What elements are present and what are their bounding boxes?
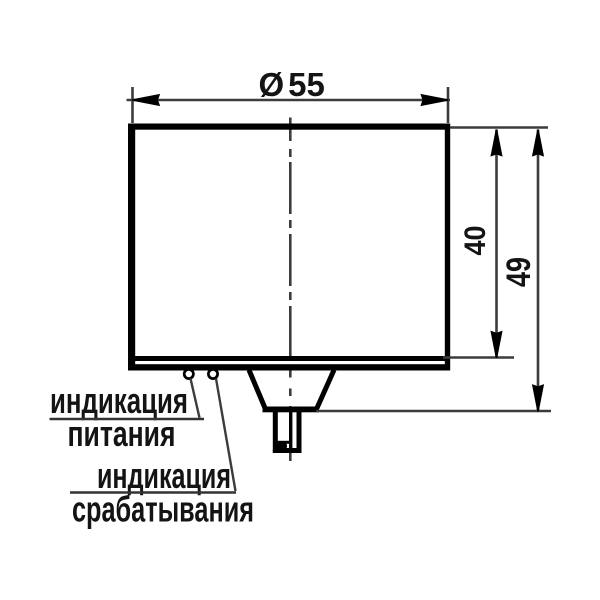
svg-text:40: 40 — [459, 226, 492, 256]
svg-text:49: 49 — [500, 257, 538, 287]
svg-text:Ø55: Ø55 — [259, 66, 325, 103]
svg-text:срабатывания: срабатывания — [72, 489, 254, 530]
svg-text:питания: питания — [68, 413, 176, 454]
